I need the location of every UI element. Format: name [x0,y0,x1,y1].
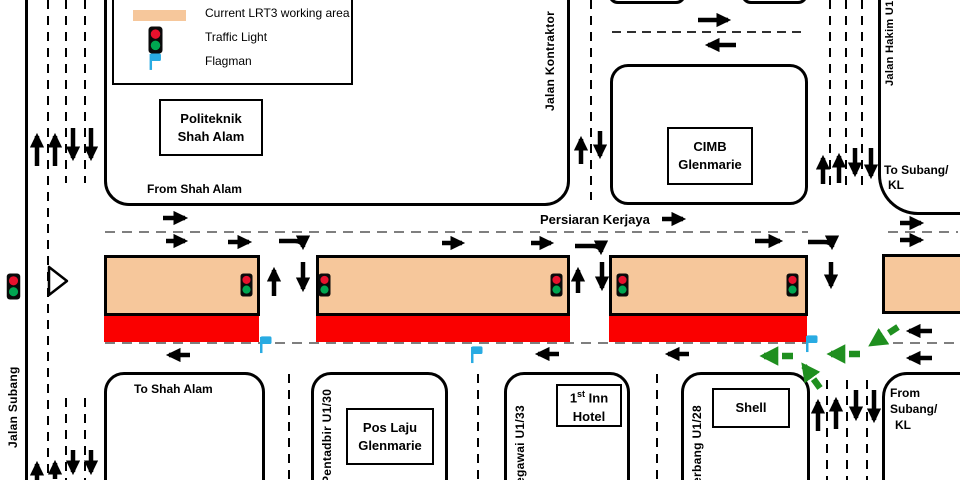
block-north-small-right [741,0,808,4]
traffic-light-icon [318,273,331,297]
lane-dash [845,0,847,188]
cimb-line2: Glenmarie [669,156,751,174]
street-label-persiaran-kerjaya: Persiaran Kerjaya [540,212,650,227]
lane-dash [65,398,67,480]
lrt3-work-area [104,255,260,316]
cimb-line1: CIMB [669,138,751,156]
turn-arrow [279,241,303,247]
hotel-box: 1st Inn Hotel [556,384,622,427]
lane-dash [866,380,868,480]
politeknik-line1: Politeknik [161,110,261,128]
lane-dash [288,374,290,480]
hotel-line2: Hotel [558,408,620,426]
cimb-box: CIMB Glenmarie [667,127,753,185]
politeknik-box: Politeknik Shah Alam [159,99,263,156]
road-edge-subang-west [25,0,28,480]
work-area-swatch [133,10,186,21]
flagman-icon [148,52,163,71]
shell-label: Shell [714,399,788,417]
flagman-icon [469,345,485,364]
politeknik-line2: Shah Alam [161,128,261,146]
lane-dash [84,0,86,183]
direction-from-subang-kl: From Subang/ KL [890,385,937,433]
lane-closure-bar [104,316,259,342]
lane-dash-gray [888,231,958,233]
lane-dash [84,398,86,480]
legend-flagman-label: Flagman [205,54,252,68]
lane-dash [861,0,863,188]
block-north-small-left [608,0,686,4]
shell-box: Shell [712,388,790,428]
turn-arrow [575,246,601,252]
flagman-icon [804,334,820,353]
legend-traffic-light-label: Traffic Light [205,30,267,44]
lane-dash [590,0,592,200]
lane-dash [846,380,848,480]
flagman-icon [258,335,274,354]
street-label-jalan-subang: Jalan Subang [6,366,20,448]
direction-from-shah-alam: From Shah Alam [147,182,242,196]
street-label-jalan-hakim: Jalan Hakim U1 [884,0,896,86]
lrt3-work-area [882,254,960,314]
traffic-light-icon [147,26,164,54]
direction-to-subang-kl: To Subang/ KL [884,163,948,193]
lane-dash [47,0,49,480]
yield-triangle [49,267,67,295]
lrt3-work-area [316,255,570,316]
pos-laju-box: Pos Laju Glenmarie [346,408,434,465]
lane-dash [826,380,828,480]
direction-to-shah-alam: To Shah Alam [134,382,213,396]
pos-laju-line2: Glenmarie [348,437,432,455]
street-label-pegawai: egawai U1/33 [513,398,527,480]
traffic-light-icon [240,273,253,297]
lane-dash [656,374,658,480]
street-label-jalan-kontraktor: Jalan Kontraktor [543,3,557,111]
traffic-management-plan: Current LRT3 working area Traffic Light … [0,0,960,480]
lane-dash [65,0,67,183]
street-label-terbang: erbang U1/28 [690,398,704,480]
lane-dash [477,374,479,480]
legend: Current LRT3 working area Traffic Light … [112,0,353,85]
lane-closure-bar [609,316,807,342]
traffic-light-icon [786,273,799,297]
lane-dash [829,0,831,188]
street-label-pentadbir: Pentadbir U1/30 [320,386,334,480]
lane-dash-gray [893,342,958,344]
lane-dash [612,31,806,33]
traffic-light-icon [616,273,629,297]
hotel-line1: 1st Inn [558,385,620,407]
lane-dash-gray [105,231,808,233]
traffic-light-icon [550,273,563,297]
turn-arrow [808,242,832,247]
pos-laju-line1: Pos Laju [348,419,432,437]
legend-work-area-label: Current LRT3 working area [205,6,350,20]
lane-dash-gray [105,342,806,344]
lrt3-work-area [609,255,808,316]
traffic-light-icon [6,273,21,300]
lane-closure-bar [316,316,570,342]
